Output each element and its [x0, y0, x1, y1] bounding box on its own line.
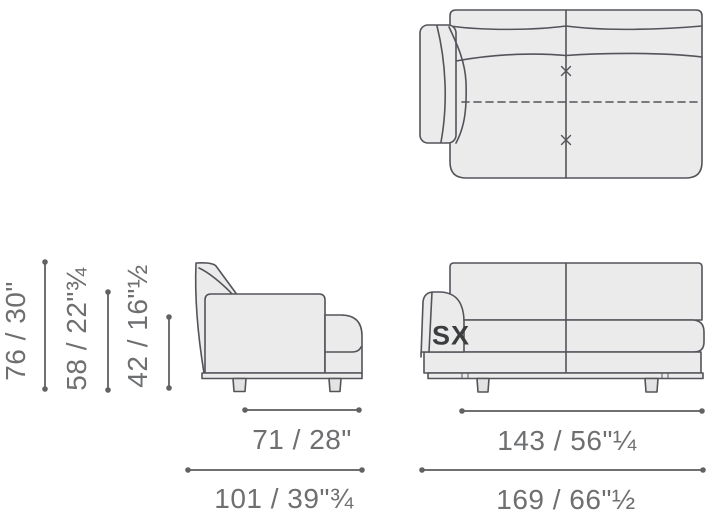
dim-line-overall-depth: [185, 467, 365, 473]
dim-label-overall-depth: 101 / 39"¾: [214, 483, 354, 514]
dim-line-seat-height: [166, 314, 172, 391]
dim-label-seat-height: 42 / 16"½: [122, 264, 154, 387]
dim-line-overall-width: [419, 467, 706, 473]
dim-label-back-height: 58 / 22"¾: [61, 267, 93, 390]
dim-label-overall-height: 76 / 30": [0, 281, 32, 381]
dim-label-seat-depth: 71 / 28": [252, 424, 352, 456]
dim-label-overall-width: 169 / 66"½: [496, 484, 636, 514]
sofa-dimension-diagram: 76 / 30" 58 / 22"¾ 42 / 16"½ 71 / 28" 10…: [0, 0, 714, 514]
top-view-drawing: [420, 10, 702, 178]
dim-line-seat-depth: [242, 407, 362, 413]
side-view-drawing: [196, 263, 362, 392]
dim-line-back-height: [105, 289, 111, 393]
dim-line-seat-width: [459, 408, 705, 414]
dim-label-seat-width: 143 / 56"¼: [497, 425, 637, 457]
orientation-label-sx: SX: [432, 321, 470, 352]
dim-line-overall-height: [42, 259, 48, 392]
